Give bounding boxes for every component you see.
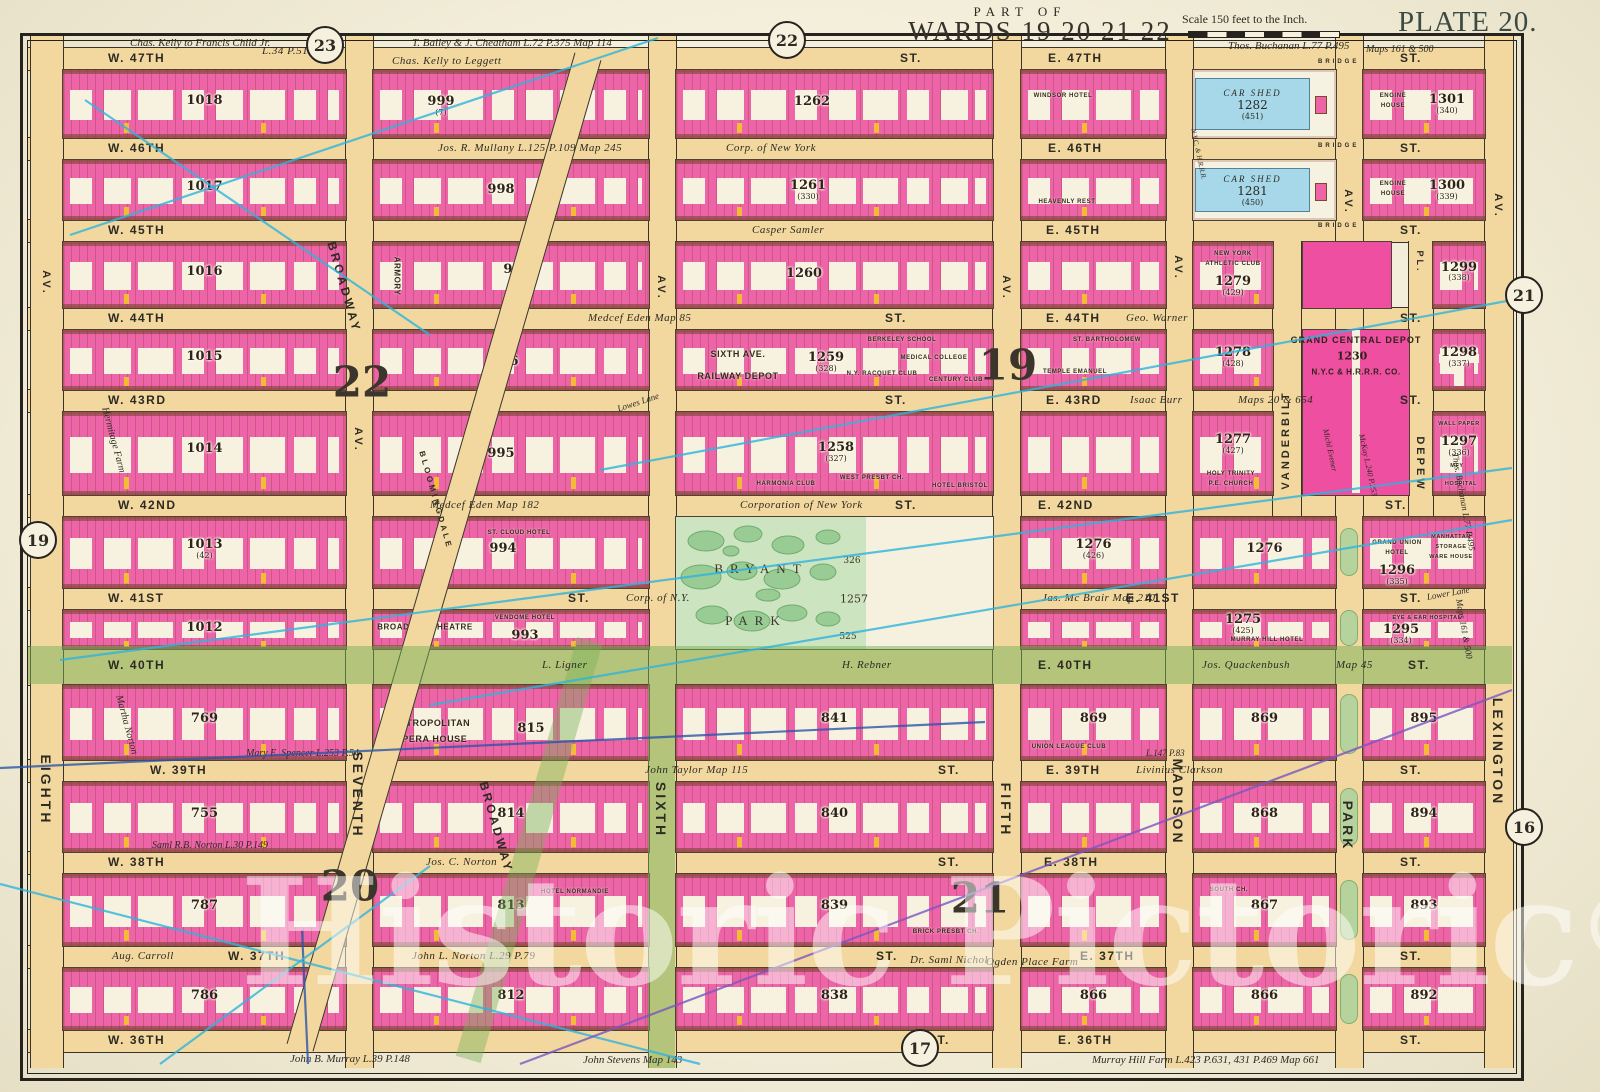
building-label: ST. CLOUD HOTEL xyxy=(488,530,551,536)
city-block: 1260 xyxy=(675,241,994,309)
street-label-46th: W. 46TH xyxy=(108,141,165,155)
street-label-43rd: Isaac Burr xyxy=(1130,394,1182,406)
city-block: CAR SHED1281(450) xyxy=(1192,159,1337,221)
block-number: 894 xyxy=(1410,807,1437,821)
bryant-park-label-2: PARK xyxy=(725,613,786,629)
city-block: 1018 xyxy=(62,69,347,139)
city-block: 1276(426) xyxy=(1020,516,1167,589)
street-label-36th: W. 36TH xyxy=(108,1033,165,1047)
avenue-label: LEXINGTON xyxy=(1490,698,1506,806)
block-number: 787 xyxy=(191,900,218,914)
city-block: CAR SHED1282(451) xyxy=(1192,69,1337,139)
block-number: 1018 xyxy=(186,94,222,108)
street-label-46th: Corp. of New York xyxy=(726,142,816,154)
block-number: 895 xyxy=(1410,712,1437,726)
building-label: HOUSE xyxy=(1381,191,1405,197)
street-label-39th: W. 39TH xyxy=(150,763,207,777)
bryant-park-num-1257: 1257 xyxy=(840,593,868,606)
building-label: VENDOME HOTEL xyxy=(495,615,555,621)
block-number: 840 xyxy=(821,807,848,821)
city-block: 1016 xyxy=(62,241,347,309)
street-label-40th: Jos. Quackenbush xyxy=(1202,659,1290,671)
street-label-45th: ST. xyxy=(1400,223,1422,237)
street-label-45th: E. 45TH xyxy=(1046,223,1101,237)
building-label: HEAVENLY REST xyxy=(1038,199,1095,205)
building-label: BERKELEY SCHOOL xyxy=(868,337,937,343)
block-number: 786 xyxy=(191,989,218,1003)
owner-annotation: John B. Murray L.39 P.148 xyxy=(290,1053,410,1065)
city-block: 1258(327)HARMONIA CLUBWEST PRESBT CH.HOT… xyxy=(675,411,994,496)
street-label-38th: W. 38TH xyxy=(108,855,165,869)
building-label: EYE & EAR HOSPITAL xyxy=(1392,615,1461,621)
block-number: 1300(339) xyxy=(1429,179,1465,201)
street-label-46th: ST. xyxy=(1400,141,1422,155)
street-label-45th: W. 45TH xyxy=(108,223,165,237)
building-label: UNION LEAGUE CLUB xyxy=(1032,744,1107,750)
street-label-43rd: E. 43RD xyxy=(1046,393,1102,407)
gcd-label-block: 1230 xyxy=(1337,350,1368,363)
block-number: 1279(429) xyxy=(1215,275,1251,297)
building-label: HOUSE xyxy=(1381,103,1405,109)
building-label: HARMONIA CLUB xyxy=(757,481,816,487)
city-block: 841 xyxy=(675,684,994,761)
avenue-label: AV. xyxy=(352,427,364,453)
block-number: 841 xyxy=(821,712,848,726)
owner-annotation: BRIDGE xyxy=(1318,59,1359,65)
city-block: 840 xyxy=(675,781,994,853)
building-label: WARE HOUSE xyxy=(1429,554,1473,560)
city-block: 995 xyxy=(372,411,650,496)
street-label-42nd: Corporation of New York xyxy=(740,499,863,511)
block-number: 1262 xyxy=(794,95,830,109)
block-number: 1295(334) xyxy=(1383,623,1419,645)
city-block xyxy=(1020,609,1167,650)
park-avenue-mall xyxy=(1340,694,1358,754)
city-block: 869UNION LEAGUE CLUB xyxy=(1020,684,1167,761)
street-label-45th: Casper Samler xyxy=(752,224,824,236)
block-number: 1013(42) xyxy=(186,538,222,560)
city-block: 1298(337) xyxy=(1432,329,1486,391)
city-block: 1301(340)ENGINEHOUSE xyxy=(1362,69,1486,139)
car-shed: CAR SHED1282(451) xyxy=(1195,78,1310,130)
city-block: 868 xyxy=(1192,781,1337,853)
block-number: 1017 xyxy=(186,180,222,194)
block-number: 769 xyxy=(191,712,218,726)
avenue-label: AV. xyxy=(1342,189,1354,215)
street-label-44th: ST. xyxy=(1400,311,1422,325)
building-label: WALL PAPER xyxy=(1438,421,1480,427)
owner-annotation: Thos. Buchanan L.77 P.495 xyxy=(1228,40,1349,52)
street-label-44th: W. 44TH xyxy=(108,311,165,325)
building-label: WINDSOR HOTEL xyxy=(1034,93,1093,99)
city-block: 1015 xyxy=(62,329,347,391)
building-label: OPERA HOUSE xyxy=(395,734,468,744)
city-block: 1277(427)HOLY TRINITYP.E. CHURCH xyxy=(1192,411,1274,496)
street-label-39th: John Taylor Map 115 xyxy=(645,764,748,776)
gcd-label-name: GRAND CENTRAL DEPOT xyxy=(1291,335,1422,345)
street-label-40th: Map 45 xyxy=(1336,659,1373,671)
avenue-label: AV. xyxy=(655,275,667,301)
street-label-41st: E. 41ST xyxy=(1126,591,1180,605)
building-label: SIXTH AVE. xyxy=(710,349,765,359)
ward-circle-16: 16 xyxy=(1505,808,1543,846)
city-block: 1262 xyxy=(675,69,994,139)
avenue-label: AV. xyxy=(1172,255,1184,281)
building-label: GRAND UNION xyxy=(1372,540,1422,546)
atlas-sheet: PART OF WARDS 19 20 21 22 PLATE 20. Scal… xyxy=(0,0,1600,1092)
building-label: ST. BARTHOLOMEW xyxy=(1073,337,1141,343)
grand-central-annex xyxy=(1302,241,1392,309)
city-block: 1013(42) xyxy=(62,516,347,589)
owner-annotation: Maps 161 & 500 xyxy=(1366,44,1434,55)
bryant-park-block: BRYANT PARK 326 1257 525 xyxy=(675,516,994,650)
city-block: 1261(330) xyxy=(675,159,994,221)
street-label-42nd: W. 42ND xyxy=(118,498,177,512)
building-label: NEW YORK xyxy=(1214,251,1252,257)
city-block: 894 xyxy=(1362,781,1486,853)
city-block: 1300(339)ENGINEHOUSE xyxy=(1362,159,1486,221)
city-block: HEAVENLY REST xyxy=(1020,159,1167,221)
street-label-42nd: ST. xyxy=(895,498,917,512)
street-label-47th: E. 47TH xyxy=(1048,51,1103,65)
owner-annotation: Mary E. Spencer L.253 P.54 xyxy=(246,748,359,759)
street-label-37th: Aug. Carroll xyxy=(112,950,174,962)
block-number: 995 xyxy=(487,447,514,461)
city-block: 814 xyxy=(372,781,650,853)
block-number: 1260 xyxy=(786,267,822,281)
bryant-park-num-326: 326 xyxy=(843,556,860,566)
street-label-40th: W. 40TH xyxy=(108,658,165,672)
building-label: STORAGE xyxy=(1435,544,1466,550)
ward-number-22: 22 xyxy=(333,358,391,407)
street-label-43rd: ST. xyxy=(885,393,907,407)
city-block: 1259(328)SIXTH AVE.RAILWAY DEPOTBERKELEY… xyxy=(675,329,994,391)
building-label: MEDICAL COLLEGE xyxy=(901,355,968,361)
block-number: 1012 xyxy=(186,621,222,635)
title-wards: WARDS 19 20 21 22 xyxy=(908,16,1172,47)
avenue-label: AV. xyxy=(1000,275,1012,301)
street-label-39th: ST. xyxy=(938,763,960,777)
owner-annotation: BRIDGE xyxy=(1318,143,1359,149)
bryant-park-num-525: 525 xyxy=(839,632,856,642)
street-label-41st: W. 41ST xyxy=(108,591,165,605)
city-block: 1276 xyxy=(1192,516,1337,589)
avenue-label: PARK xyxy=(1340,801,1356,852)
block-number: 1276 xyxy=(1246,542,1282,556)
owner-annotation: T. Bailey & J. Cheatham L.72 P.375 Map 1… xyxy=(412,37,612,49)
ward-circle-21: 21 xyxy=(1505,276,1543,314)
city-block: 869 xyxy=(1192,684,1337,761)
city-block: 1017 xyxy=(62,159,347,221)
city-block: 1275(425)MURRAY HILL HOTEL xyxy=(1192,609,1337,650)
city-block xyxy=(1020,411,1167,496)
owner-annotation: Murray Hill Farm L.423 P.631, 431 P.469 … xyxy=(1092,1054,1320,1066)
street-label-47th: ST. xyxy=(900,51,922,65)
ward-number-19: 19 xyxy=(979,341,1037,390)
street-label-47th: Chas. Kelly to Leggett xyxy=(392,55,501,67)
avenue-label: AV. xyxy=(40,270,52,296)
building-label: ARMORY xyxy=(393,257,402,296)
street-label-40th: E. 40TH xyxy=(1038,658,1093,672)
gcd-label-railroad: N.Y.C & H.R.R.R. CO. xyxy=(1311,368,1400,377)
building-label: ENGINE xyxy=(1380,181,1407,187)
car-shed: CAR SHED1281(450) xyxy=(1195,168,1310,212)
city-block: 998 xyxy=(372,159,650,221)
building-label: WEST PRESBT CH. xyxy=(840,475,904,481)
city-block: 1279(429)NEW YORKATHLETIC CLUB xyxy=(1192,241,1274,309)
block-number: 994 xyxy=(489,542,516,556)
street-band-39th xyxy=(27,759,1512,783)
building-label: HOLY TRINITY xyxy=(1207,471,1255,477)
shed-building xyxy=(1315,96,1327,114)
street-label-43rd: Maps 20 & 654 xyxy=(1238,394,1313,406)
block-number: 1278(428) xyxy=(1215,346,1251,368)
ward-circle-19: 19 xyxy=(19,521,57,559)
scale-label: Scale 150 feet to the Inch. xyxy=(1182,12,1307,27)
block-number: 1299(338) xyxy=(1441,261,1477,283)
avenue-label: SIXTH xyxy=(653,782,669,838)
building-label: TEMPLE EMANUEL xyxy=(1043,369,1107,375)
street-label-42nd: E. 42ND xyxy=(1038,498,1094,512)
street-label-44th: ST. xyxy=(885,311,907,325)
avenue-label: PL. xyxy=(1415,250,1425,273)
avenue-label: MADISON xyxy=(1170,758,1186,845)
street-label-43rd: ST. xyxy=(1400,393,1422,407)
block-number: 993 xyxy=(511,629,538,643)
street-label-40th: H. Rebner xyxy=(842,659,892,671)
street-band-36th xyxy=(27,1029,1512,1053)
city-block: ST. BARTHOLOMEWTEMPLE EMANUEL xyxy=(1020,329,1167,391)
avenue-label: DEPEW xyxy=(1414,436,1426,491)
block-number: 1298(337) xyxy=(1441,346,1477,368)
city-block: 1278(428) xyxy=(1192,329,1274,391)
avenue-label: EIGHTH xyxy=(38,755,54,826)
building-label: CENTURY CLUB xyxy=(929,377,983,383)
block-number: 1015 xyxy=(186,350,222,364)
block-number: 1258(327) xyxy=(818,441,854,463)
city-block: 1012 xyxy=(62,609,347,650)
building-label: HOTEL BRISTOL xyxy=(932,483,988,489)
block-number: 998 xyxy=(487,183,514,197)
street-label-46th: Jos. R. Mullany L.125 P.109 Map 245 xyxy=(438,142,622,154)
scale-bar xyxy=(1188,31,1340,38)
avenue-label: AV. xyxy=(1492,193,1504,219)
street-label-40th: L. Ligner xyxy=(542,659,587,671)
street-label-43rd: W. 43RD xyxy=(108,393,167,407)
block-number: 814 xyxy=(497,807,524,821)
city-block xyxy=(1020,241,1167,309)
shed-building xyxy=(1315,183,1327,201)
street-label-36th: ST. xyxy=(1400,1033,1422,1047)
ward-circle-23: 23 xyxy=(306,26,344,64)
block-number: 1296(335) xyxy=(1379,564,1415,586)
city-block: 999(7) xyxy=(372,69,650,139)
owner-annotation: John Stevens Map 143 xyxy=(583,1054,682,1066)
street-label-47th: W. 47TH xyxy=(108,51,165,65)
block-number: 1277(427) xyxy=(1215,433,1251,455)
owner-annotation: Chas. Kelly to Francis Child Jr. xyxy=(130,37,270,49)
block-number: 815 xyxy=(517,722,544,736)
park-avenue-mall xyxy=(1340,610,1358,646)
bryant-park-paths xyxy=(676,517,866,649)
city-block: WINDSOR HOTEL xyxy=(1020,69,1167,139)
block-number: 1276(426) xyxy=(1075,538,1111,560)
avenue-label: FIFTH xyxy=(998,783,1014,838)
block-number: 1014 xyxy=(186,443,222,457)
bryant-park-label-1: BRYANT xyxy=(714,561,807,577)
block-number: 869 xyxy=(1080,712,1107,726)
building-label: P.E. CHURCH xyxy=(1209,481,1254,487)
city-block xyxy=(1020,781,1167,853)
street-label-39th: ST. xyxy=(1400,763,1422,777)
city-block: 1299(338) xyxy=(1432,241,1486,309)
owner-annotation: BRIDGE xyxy=(1318,223,1359,229)
block-number: 1261(330) xyxy=(790,179,826,201)
block-number: 1275(425) xyxy=(1225,613,1261,635)
street-label-39th: E. 39TH xyxy=(1046,763,1101,777)
building-label: MURRAY HILL HOTEL xyxy=(1231,637,1304,643)
park-avenue-mall xyxy=(1340,528,1358,576)
block-number: 869 xyxy=(1251,712,1278,726)
block-number: 1016 xyxy=(186,265,222,279)
avenue-label: VANDERBILT xyxy=(1280,390,1292,489)
building-label: HOTEL xyxy=(1385,550,1408,556)
building-label: ENGINE xyxy=(1380,93,1407,99)
avenue-label: SEVENTH xyxy=(350,751,366,838)
street-label-41st: ST. xyxy=(1400,591,1422,605)
ward-circle-17: 17 xyxy=(901,1029,939,1067)
block-number: 755 xyxy=(191,807,218,821)
building-label: RAILWAY DEPOT xyxy=(697,371,778,381)
street-label-42nd: ST. xyxy=(1385,498,1407,512)
street-label-44th: Geo. Warner xyxy=(1126,312,1188,324)
plate-number: PLATE 20. xyxy=(1398,6,1538,39)
block-number: 868 xyxy=(1251,807,1278,821)
building-label: N.Y. RACQUET CLUB xyxy=(847,371,918,377)
street-label-46th: E. 46TH xyxy=(1048,141,1103,155)
street-label-40th: ST. xyxy=(1408,658,1430,672)
building-label: ATHLETIC CLUB xyxy=(1205,261,1260,267)
city-block: 895 xyxy=(1362,684,1486,761)
street-label-44th: Medcef Eden Map 85 xyxy=(588,312,691,324)
street-label-42nd: Medcef Eden Map 182 xyxy=(430,499,539,511)
street-label-36th: E. 36TH xyxy=(1058,1033,1113,1047)
owner-annotation: L.147 P.83 xyxy=(1146,748,1185,758)
street-label-41st: Corp. of N.Y. xyxy=(626,592,690,604)
block-number: 1301(340) xyxy=(1429,93,1465,115)
street-label-44th: E. 44TH xyxy=(1046,311,1101,325)
block-number: 999(7) xyxy=(427,95,454,117)
ward-circle-22: 22 xyxy=(768,21,806,59)
street-label-41st: ST. xyxy=(568,591,590,605)
watermark: Historic Pictoric© xyxy=(240,845,1600,1019)
block-number: 1259(328) xyxy=(808,351,844,373)
city-block: 994ST. CLOUD HOTEL xyxy=(372,516,650,589)
